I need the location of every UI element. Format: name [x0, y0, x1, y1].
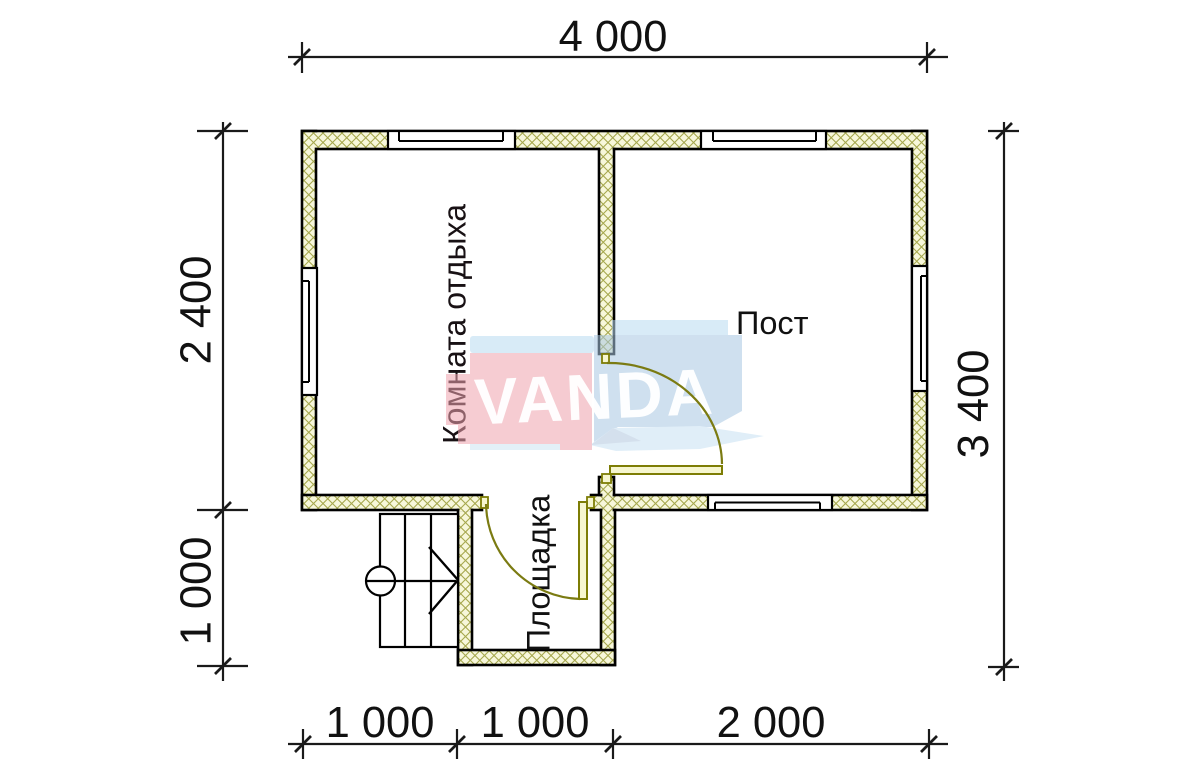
svg-text:3 400: 3 400 — [950, 350, 998, 459]
svg-text:1 000: 1 000 — [481, 699, 590, 747]
svg-text:Площадка: Площадка — [521, 494, 557, 652]
svg-text:1 000: 1 000 — [326, 699, 435, 747]
svg-text:2 000: 2 000 — [717, 699, 826, 747]
svg-text:VANDA: VANDA — [473, 355, 717, 439]
svg-text:2 400: 2 400 — [173, 256, 221, 365]
svg-text:1 000: 1 000 — [173, 537, 221, 646]
svg-text:Пост: Пост — [736, 305, 809, 341]
svg-text:4 000: 4 000 — [559, 13, 668, 61]
